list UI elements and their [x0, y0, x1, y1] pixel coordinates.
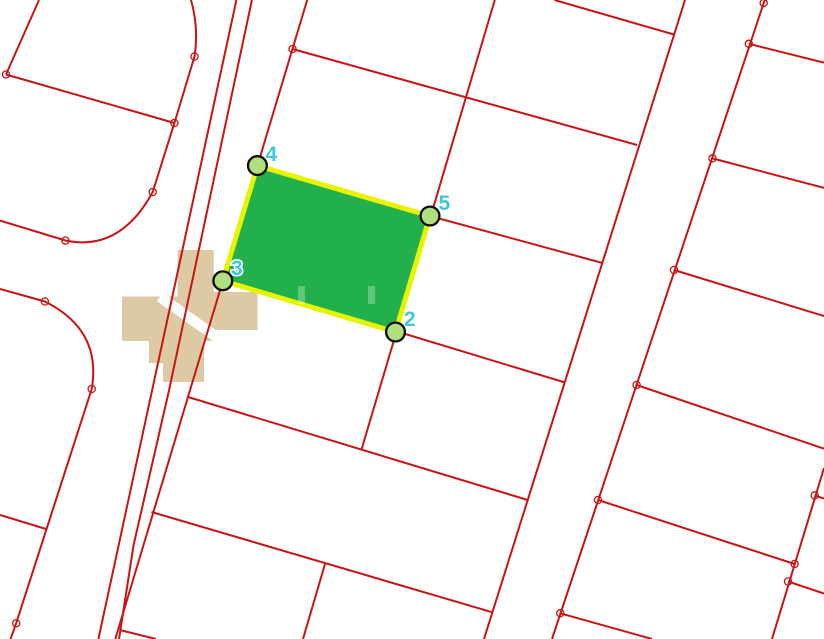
svg-text:5: 5: [439, 192, 451, 215]
svg-text:2: 2: [404, 308, 416, 331]
svg-text:3: 3: [231, 257, 243, 280]
svg-text:4: 4: [266, 143, 278, 166]
